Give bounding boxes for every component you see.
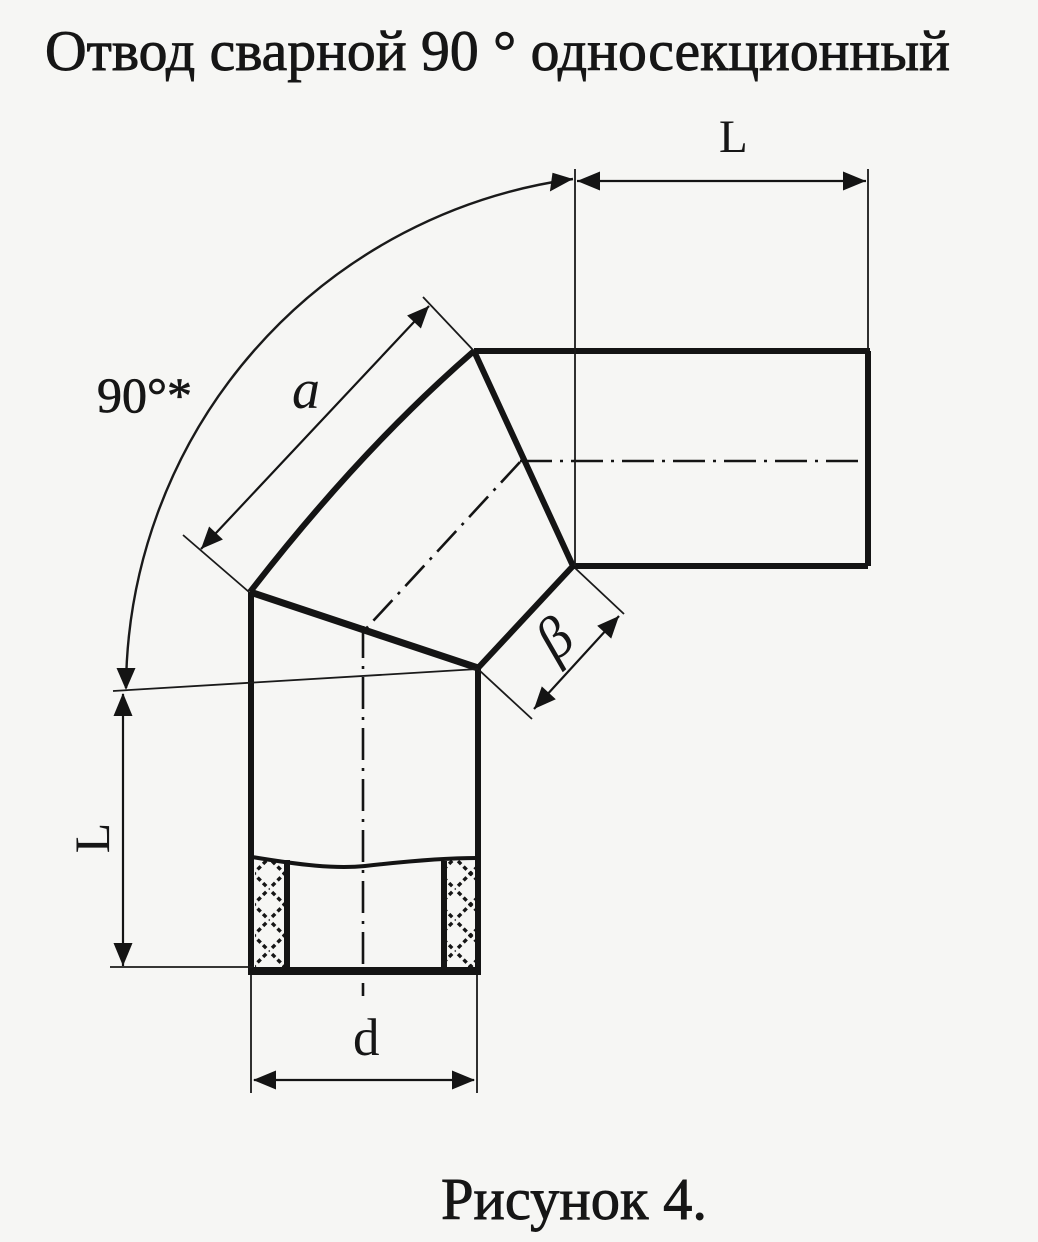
svg-text:90°*: 90°* [97,367,192,423]
svg-text:L: L [64,823,120,854]
svg-text:L: L [719,111,748,163]
svg-text:Рисунок 4.: Рисунок 4. [441,1166,707,1232]
svg-text:a: a [292,359,320,421]
svg-text:d: d [353,1009,380,1067]
svg-text:Отвод сварной 90 ° односекцион: Отвод сварной 90 ° односекционный [45,20,950,83]
